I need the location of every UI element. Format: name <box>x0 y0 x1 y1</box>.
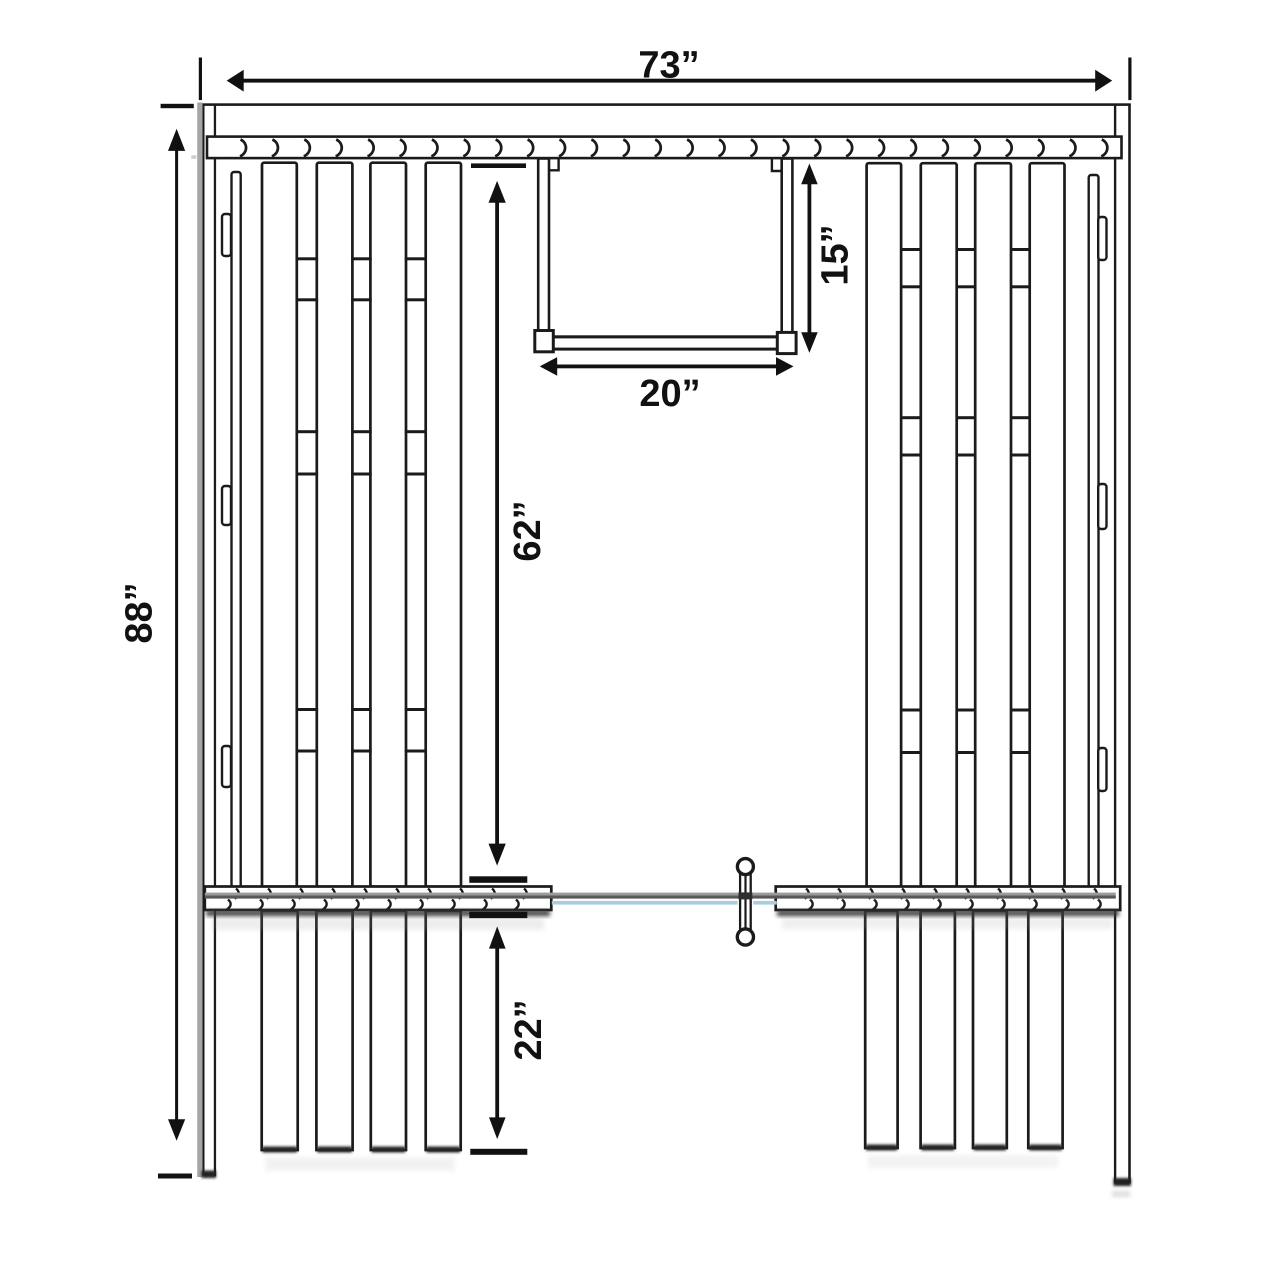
svg-text:22”: 22” <box>508 999 550 1060</box>
svg-text:20”: 20” <box>639 373 700 415</box>
svg-text:62”: 62” <box>507 500 549 561</box>
svg-text:73”: 73” <box>638 44 699 86</box>
svg-text:15”: 15” <box>815 224 857 285</box>
svg-text:88”: 88” <box>119 582 161 643</box>
